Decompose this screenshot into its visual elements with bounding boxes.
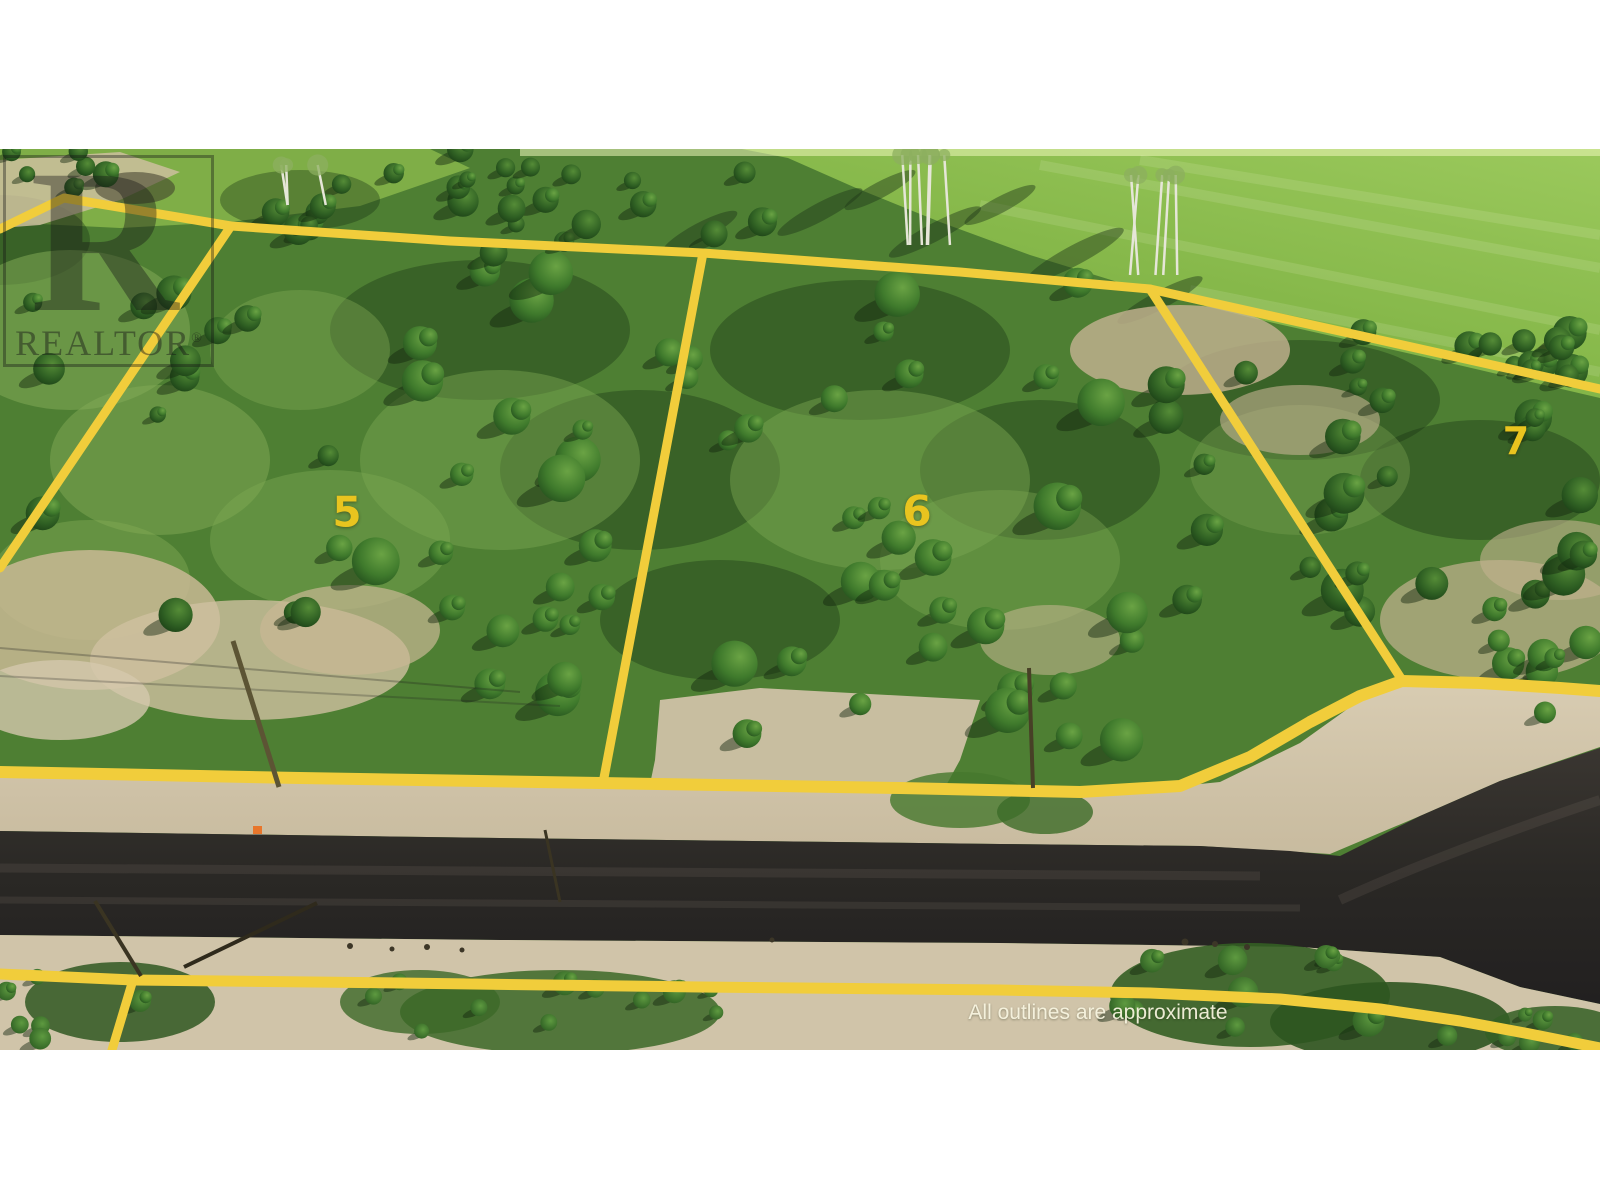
aerial-photo-scene xyxy=(0,0,1600,1200)
listing-photo-canvas: R REALTOR® 5 6 7 All outlines are approx… xyxy=(0,0,1600,1200)
outline-disclaimer: All outlines are approximate xyxy=(968,1001,1227,1025)
lot-number-6: 6 xyxy=(902,487,931,536)
photo-region xyxy=(0,136,1600,1062)
orange-survey-marker xyxy=(253,826,262,834)
lot-number-5: 5 xyxy=(332,488,361,537)
lot-number-7: 7 xyxy=(1503,419,1529,463)
